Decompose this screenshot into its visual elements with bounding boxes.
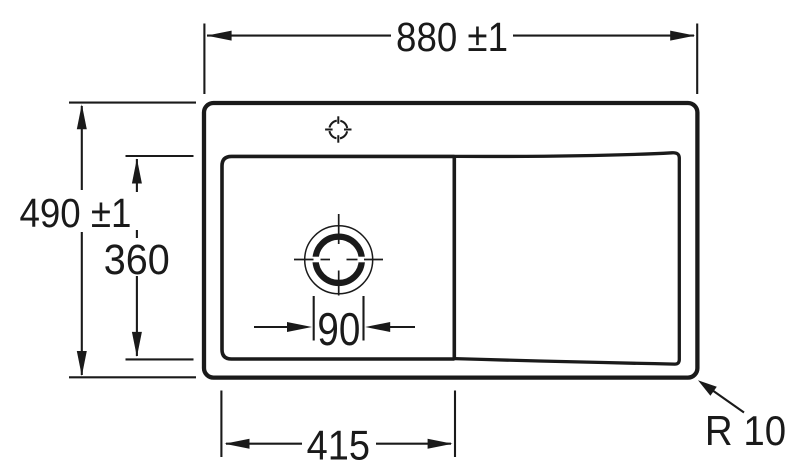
svg-text:360: 360 [104, 235, 170, 283]
svg-text:880 ±1: 880 ±1 [396, 15, 508, 60]
svg-text:415: 415 [307, 423, 370, 469]
svg-text:R 10: R 10 [705, 407, 786, 454]
svg-text:490 ±1: 490 ±1 [19, 191, 131, 236]
svg-text:90: 90 [317, 304, 360, 355]
